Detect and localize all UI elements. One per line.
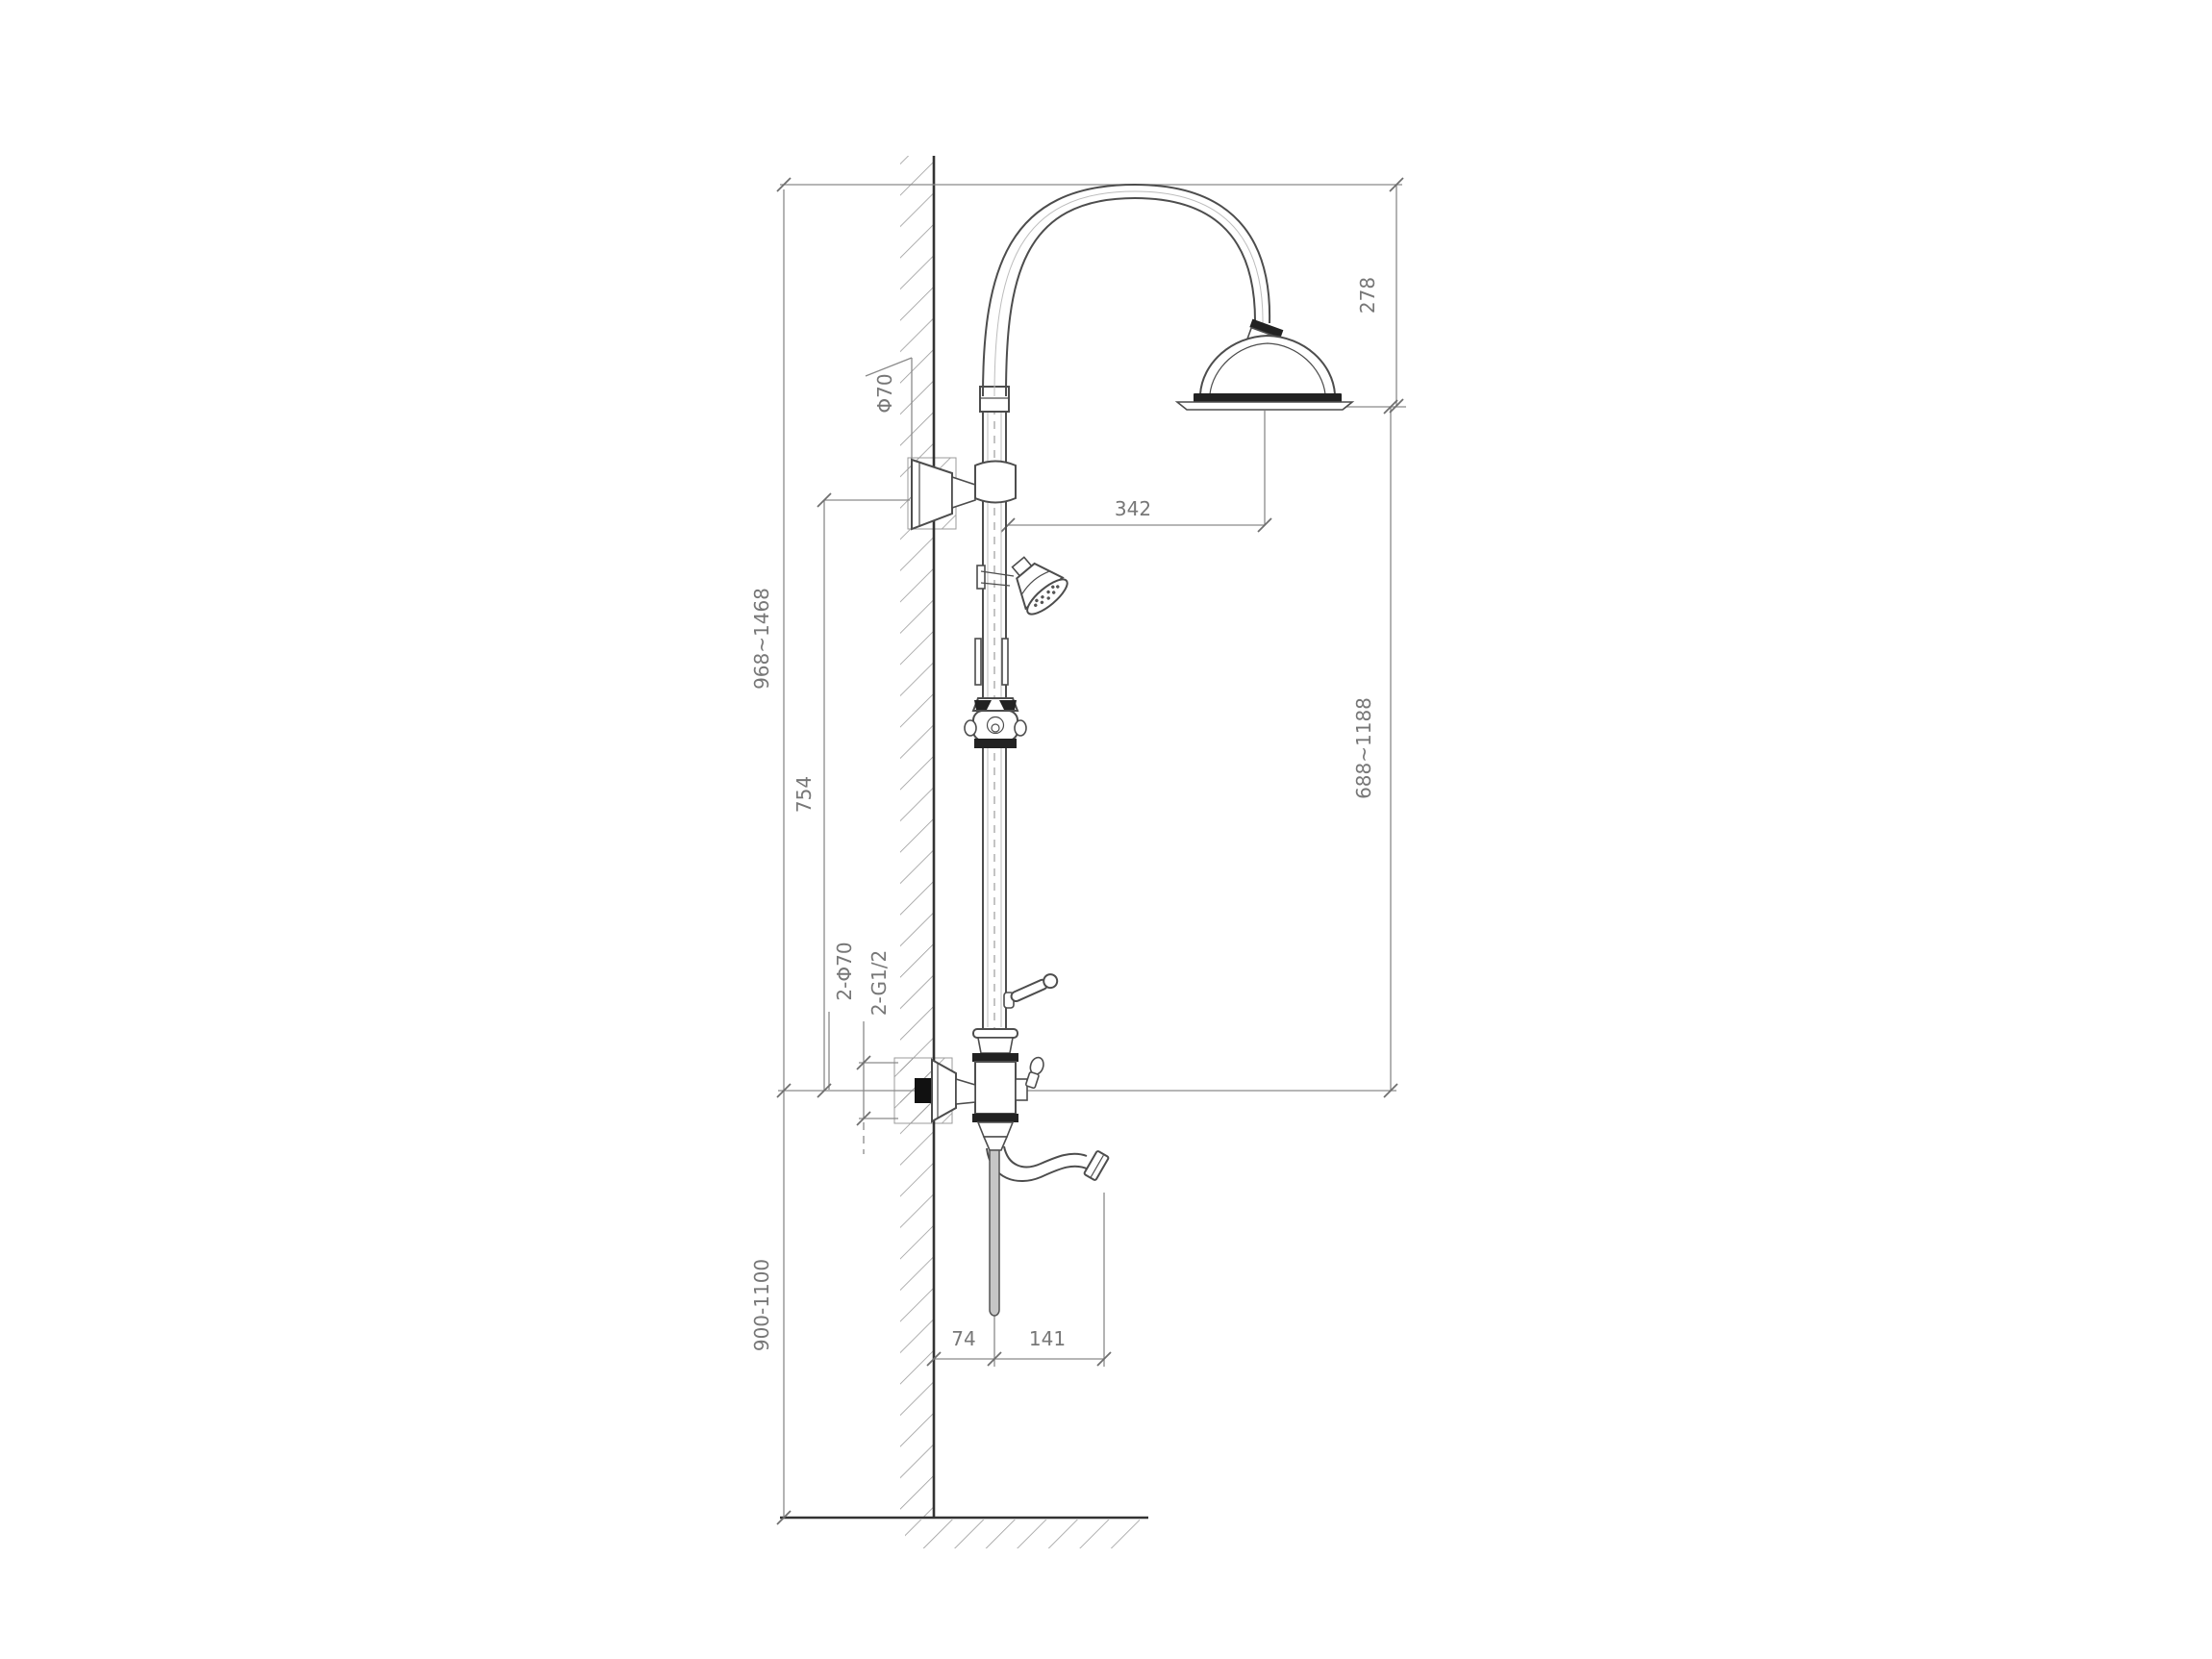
dim-label-74: 74 <box>951 1327 975 1350</box>
spout-nozzle-cap <box>1084 1150 1109 1180</box>
head-rim-flange <box>1177 402 1352 410</box>
hand-shower-mount <box>977 566 985 589</box>
dim-label-900-1100: 900-1100 <box>750 1259 773 1351</box>
mixer-top-collar <box>973 1029 1018 1038</box>
wall-port-stub <box>915 1078 931 1103</box>
holder-tab-left <box>975 639 981 685</box>
hand-shower-head <box>999 546 1072 619</box>
dim-label-phi70: Φ70 <box>873 373 896 413</box>
holder-tab-right <box>1002 639 1008 685</box>
slider-seal-band <box>974 739 1017 748</box>
dim-label-2-g12: 2-G1/2 <box>867 950 891 1016</box>
dim-label-278: 278 <box>1356 277 1379 314</box>
hand-shower <box>975 546 1072 685</box>
mixer-wall-stem <box>956 1079 975 1104</box>
shower-column-drawing: Φ70 278 342 968~1468 754 688~1188 900-11… <box>0 0 2212 1659</box>
rain-shower-head <box>1177 319 1352 410</box>
head-seal-band <box>1194 393 1342 402</box>
technical-drawing-page: Φ70 278 342 968~1468 754 688~1188 900-11… <box>0 0 2212 1659</box>
floor-hatching <box>905 1520 1140 1548</box>
mixer-side-port <box>1016 1079 1027 1100</box>
dim-label-141: 141 <box>1029 1327 1066 1350</box>
mixer-body <box>975 1062 1016 1114</box>
dim-label-968-1468: 968~1468 <box>750 588 773 690</box>
tub-spout <box>987 1146 1109 1181</box>
dim-label-342: 342 <box>1115 497 1151 520</box>
head-dome <box>1200 336 1335 394</box>
mixer-side-knob <box>1024 1056 1045 1089</box>
wall-section <box>894 156 956 1518</box>
dim-label-754: 754 <box>792 776 816 813</box>
hand-shower-hose <box>990 1150 999 1316</box>
dim-label-2-phi70: 2-Φ70 <box>833 942 856 1000</box>
dim-label-688-1188: 688~1188 <box>1352 697 1375 799</box>
upper-wall-bracket <box>912 460 1016 529</box>
diverter-lever <box>1009 972 1059 1005</box>
bracket-pipe-clamp <box>975 462 1016 503</box>
mixer-bottom-seal <box>972 1114 1018 1122</box>
floor-section <box>780 1518 1148 1548</box>
slider-joint <box>965 698 1026 748</box>
mixer-top-seal <box>972 1053 1018 1062</box>
bracket-arm <box>952 477 975 508</box>
